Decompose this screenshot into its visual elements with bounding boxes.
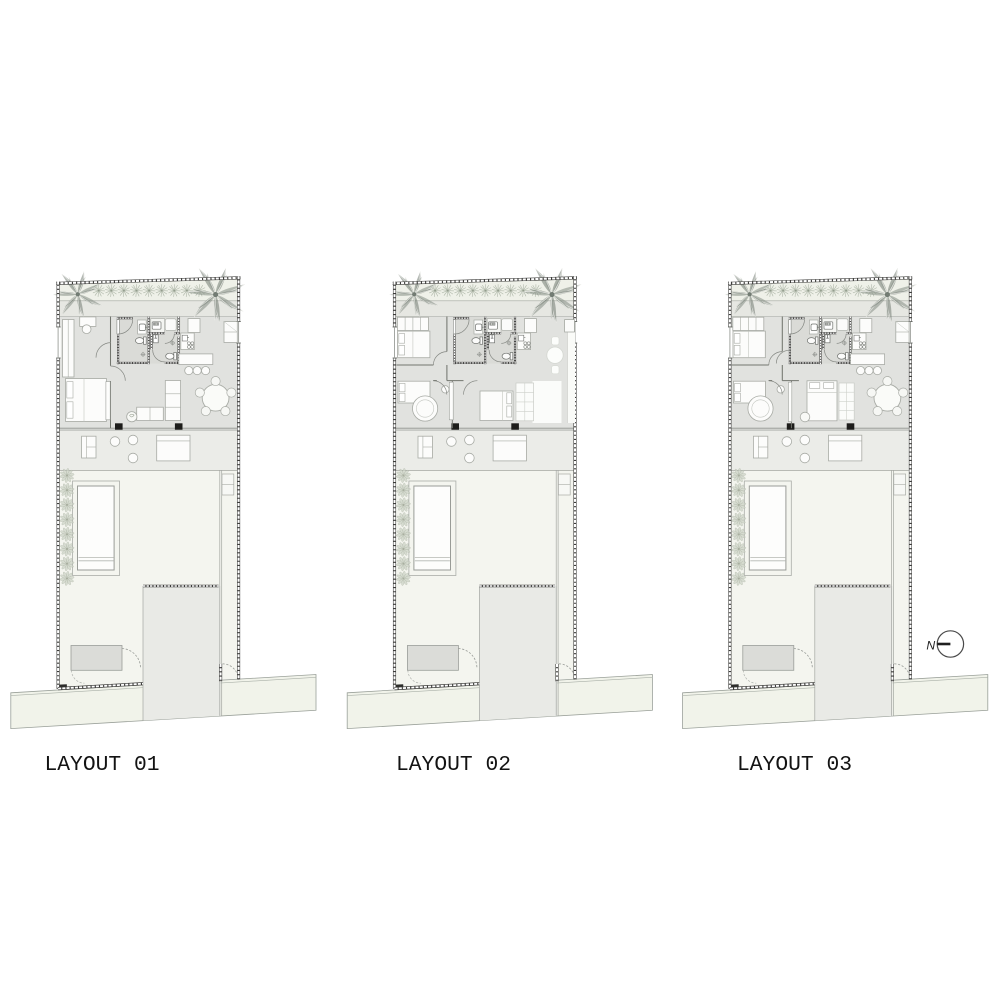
svg-text:LAYOUT 01: LAYOUT 01 [45, 753, 160, 777]
svg-text:LAYOUT 03: LAYOUT 03 [737, 753, 852, 777]
svg-text:LAYOUT 02: LAYOUT 02 [396, 753, 511, 777]
svg-text:N: N [926, 639, 935, 653]
